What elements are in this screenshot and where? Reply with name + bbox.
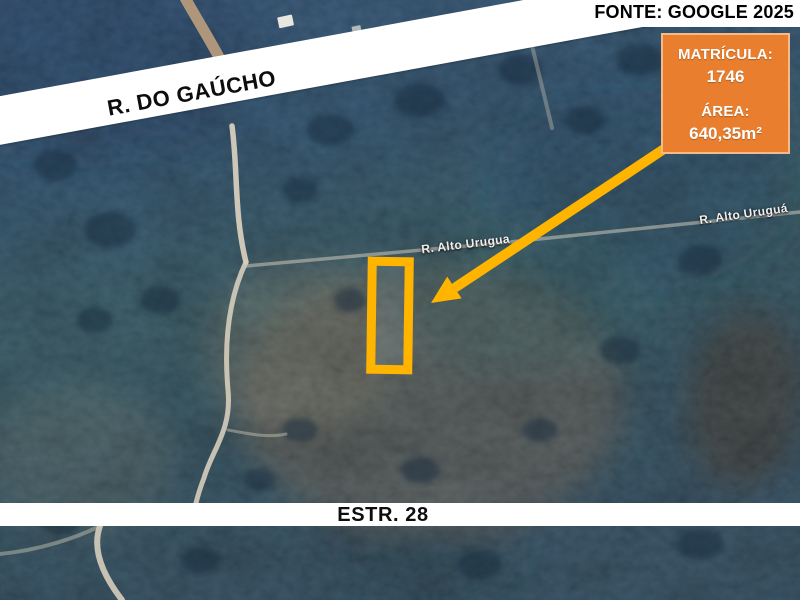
figure-root: R. Alto Urugua R. Alto Uruguá R. DO GAÚC…	[0, 0, 800, 600]
area-label: ÁREA:	[701, 101, 750, 122]
property-info-box: MATRÍCULA: 1746 ÁREA: 640,35m²	[661, 33, 790, 154]
road-band-estr28-label: ESTR. 28	[337, 505, 429, 525]
property-boundary-highlight	[366, 257, 414, 375]
matricula-value: 1746	[707, 65, 745, 88]
source-credit: FONTE: GOOGLE 2025	[584, 0, 800, 27]
matricula-label: MATRÍCULA:	[678, 44, 773, 65]
area-value: 640,35m²	[689, 122, 762, 145]
road-band-estr28: ESTR. 28	[0, 503, 800, 526]
